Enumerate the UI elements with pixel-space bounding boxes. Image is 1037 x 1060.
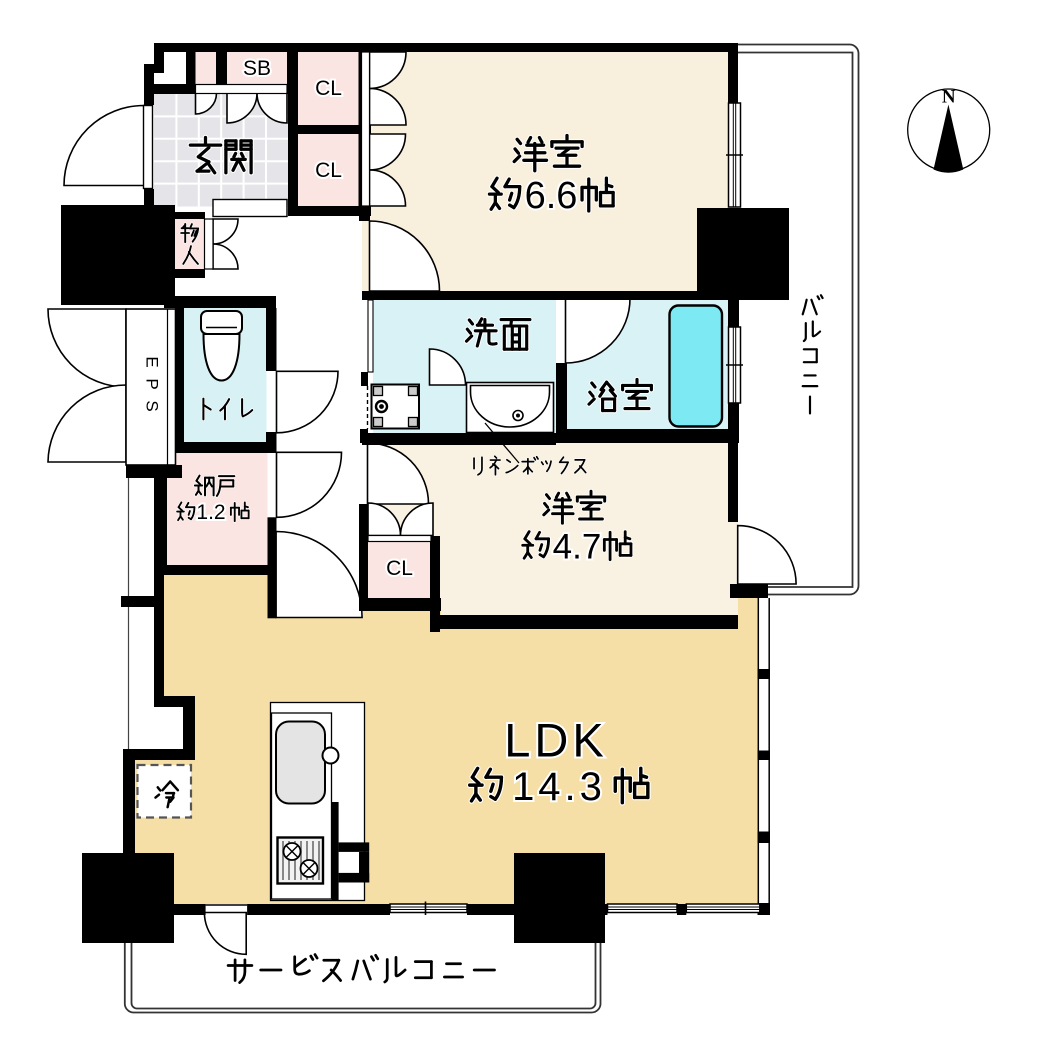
svg-text:14.3: 14.3 [512, 765, 606, 809]
svg-text:1.2: 1.2 [196, 501, 225, 524]
svg-text:CL: CL [386, 557, 413, 580]
svg-text:N: N [942, 87, 956, 108]
svg-text:4.7: 4.7 [553, 528, 602, 567]
svg-text:P: P [143, 378, 162, 389]
svg-text:6.6: 6.6 [525, 175, 578, 217]
svg-text:SB: SB [243, 57, 271, 80]
svg-text:CL: CL [315, 159, 342, 182]
svg-text:S: S [143, 400, 162, 411]
svg-text:E: E [143, 356, 162, 367]
svg-text:CL: CL [315, 77, 342, 100]
svg-text:LDK: LDK [504, 714, 607, 767]
